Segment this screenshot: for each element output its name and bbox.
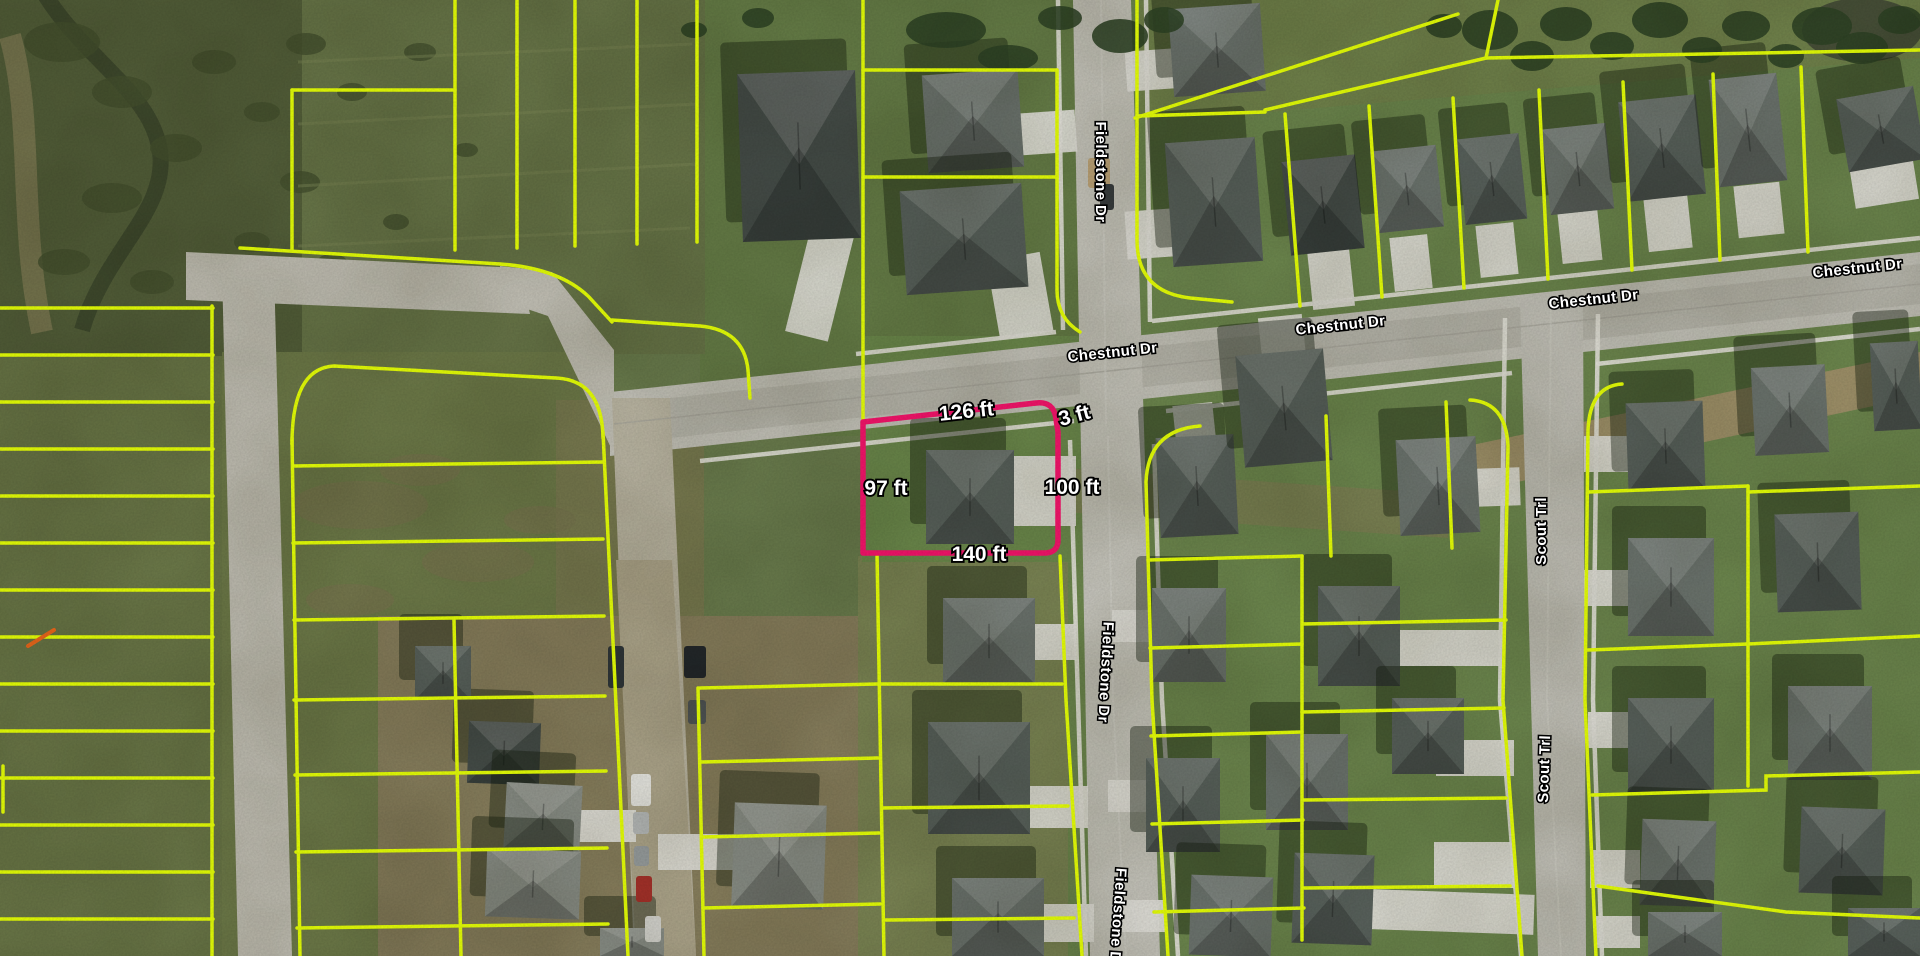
street-label-scout-2: Scout Trl xyxy=(1535,735,1554,803)
parcel-dimension-west: 97 ft xyxy=(864,477,907,500)
parcel-dimension-south: 140 ft xyxy=(952,543,1007,566)
photo-grain-overlay xyxy=(0,0,1920,956)
street-label-fieldstone-1: Fieldstone Dr xyxy=(1092,121,1109,222)
parcel-dimension-east: 100 ft xyxy=(1045,476,1100,499)
map-viewport[interactable]: Chestnut Dr Chestnut Dr Chestnut Dr Ches… xyxy=(0,0,1920,956)
street-label-scout-1: Scout Trl xyxy=(1533,497,1550,565)
aerial-parcel-map[interactable]: Chestnut Dr Chestnut Dr Chestnut Dr Ches… xyxy=(0,0,1920,956)
